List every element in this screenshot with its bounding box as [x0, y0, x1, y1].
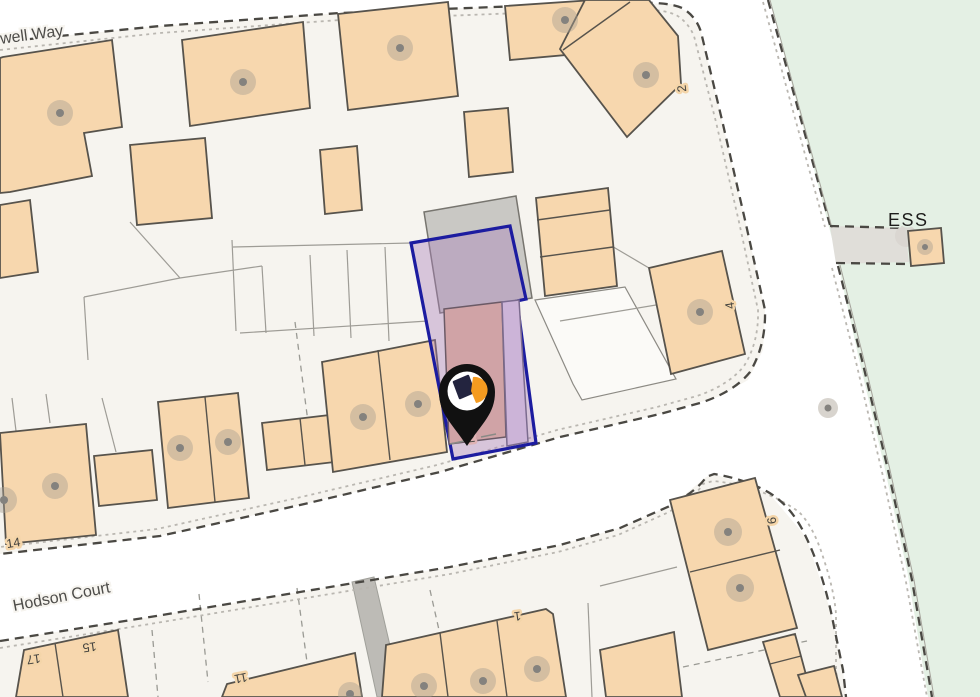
house-number-15: 15	[82, 639, 98, 655]
house-number-17: 17	[26, 651, 42, 667]
map-canvas[interactable]: owell Way Hodson Court ESS 2 4 6 14 17 1…	[0, 0, 980, 697]
area-label-ess: ESS	[888, 210, 929, 230]
house-number-11: 11	[233, 670, 248, 686]
garage-block	[536, 188, 617, 296]
map-svg: owell Way Hodson Court ESS 2 4 6 14 17 1…	[0, 0, 980, 697]
house-number-14: 14	[5, 535, 21, 551]
